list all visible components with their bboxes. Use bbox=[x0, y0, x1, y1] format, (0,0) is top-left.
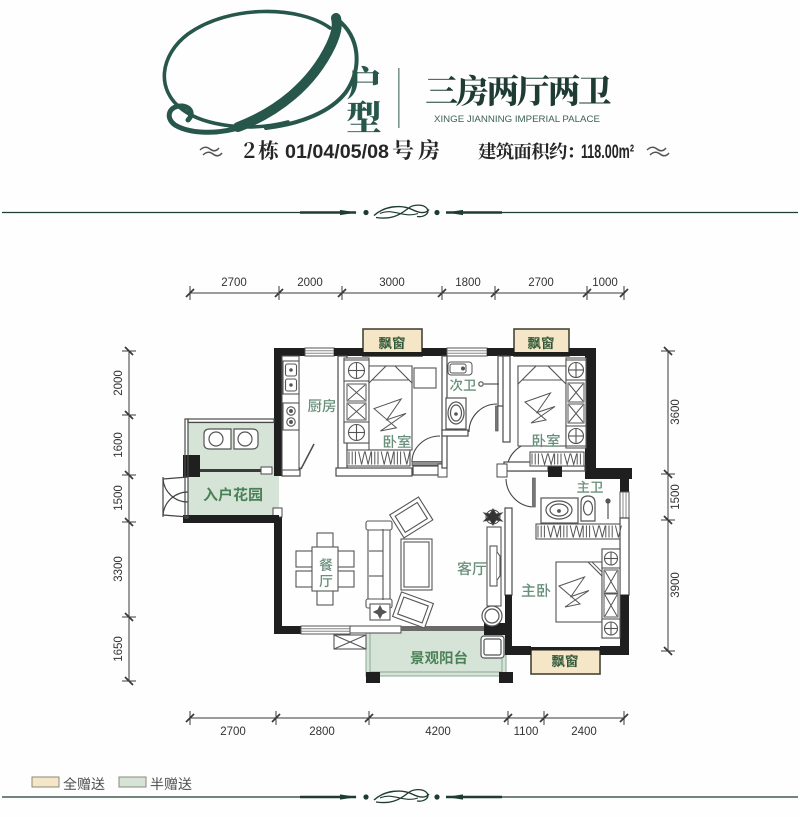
svg-text:2800: 2800 bbox=[309, 726, 335, 738]
svg-text:2000: 2000 bbox=[113, 370, 125, 396]
svg-text:2700: 2700 bbox=[528, 277, 554, 289]
svg-text:118.00m²: 118.00m² bbox=[581, 142, 634, 163]
svg-text:1500: 1500 bbox=[113, 485, 125, 511]
svg-text:1500: 1500 bbox=[670, 484, 682, 510]
svg-text:XINGE JIANNING IMPERIAL PALACE: XINGE JIANNING IMPERIAL PALACE bbox=[434, 114, 600, 125]
svg-text:1800: 1800 bbox=[455, 277, 481, 289]
svg-text:2000: 2000 bbox=[297, 277, 323, 289]
svg-text:1650: 1650 bbox=[113, 636, 125, 662]
svg-text:2400: 2400 bbox=[571, 726, 597, 738]
svg-text:1600: 1600 bbox=[113, 432, 125, 458]
svg-text:3600: 3600 bbox=[670, 399, 682, 425]
svg-text:1000: 1000 bbox=[592, 277, 618, 289]
svg-text:3000: 3000 bbox=[379, 277, 405, 289]
svg-text:1100: 1100 bbox=[514, 726, 539, 738]
svg-text:4200: 4200 bbox=[425, 726, 451, 738]
svg-text:01/04/05/08: 01/04/05/08 bbox=[285, 142, 389, 163]
svg-text:2700: 2700 bbox=[221, 277, 247, 289]
svg-text:3900: 3900 bbox=[670, 572, 682, 598]
svg-text:3300: 3300 bbox=[113, 556, 125, 582]
svg-text:2700: 2700 bbox=[220, 726, 246, 738]
